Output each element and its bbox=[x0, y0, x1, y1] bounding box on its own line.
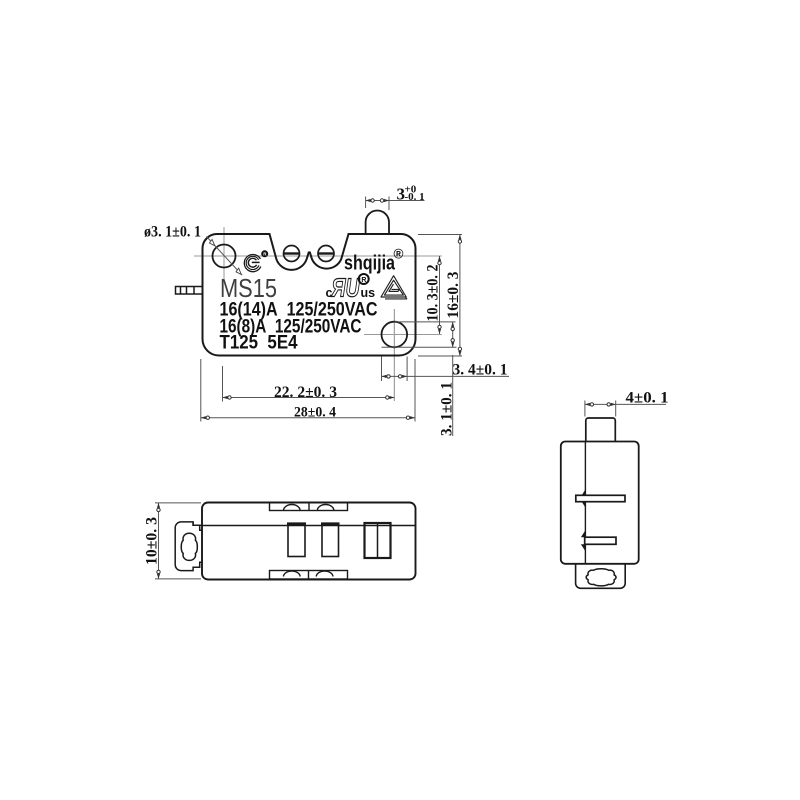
svg-text:us: us bbox=[361, 286, 376, 300]
svg-text:®: ® bbox=[394, 247, 404, 262]
svg-text:10. 3±0. 2: 10. 3±0. 2 bbox=[425, 264, 442, 321]
svg-text:-0. 1: -0. 1 bbox=[405, 191, 425, 203]
svg-text:R: R bbox=[361, 277, 366, 284]
svg-text:28±0. 4: 28±0. 4 bbox=[294, 405, 336, 421]
svg-text:ø3. 1±0. 1: ø3. 1±0. 1 bbox=[144, 224, 201, 241]
svg-text:4±0. 1: 4±0. 1 bbox=[626, 390, 669, 407]
svg-text:T125 5E4: T125 5E4 bbox=[220, 332, 298, 354]
svg-text:3. 1±0. 1: 3. 1±0. 1 bbox=[439, 382, 456, 436]
svg-text:16±0. 3: 16±0. 3 bbox=[445, 271, 462, 318]
svg-text:ЯU: ЯU bbox=[331, 273, 361, 303]
svg-text:22. 2±0. 3: 22. 2±0. 3 bbox=[274, 384, 337, 401]
svg-text:10±0. 3: 10±0. 3 bbox=[144, 517, 161, 565]
svg-text:3. 4±0. 1: 3. 4±0. 1 bbox=[453, 362, 508, 379]
svg-text:shqijia: shqijia bbox=[344, 252, 395, 275]
